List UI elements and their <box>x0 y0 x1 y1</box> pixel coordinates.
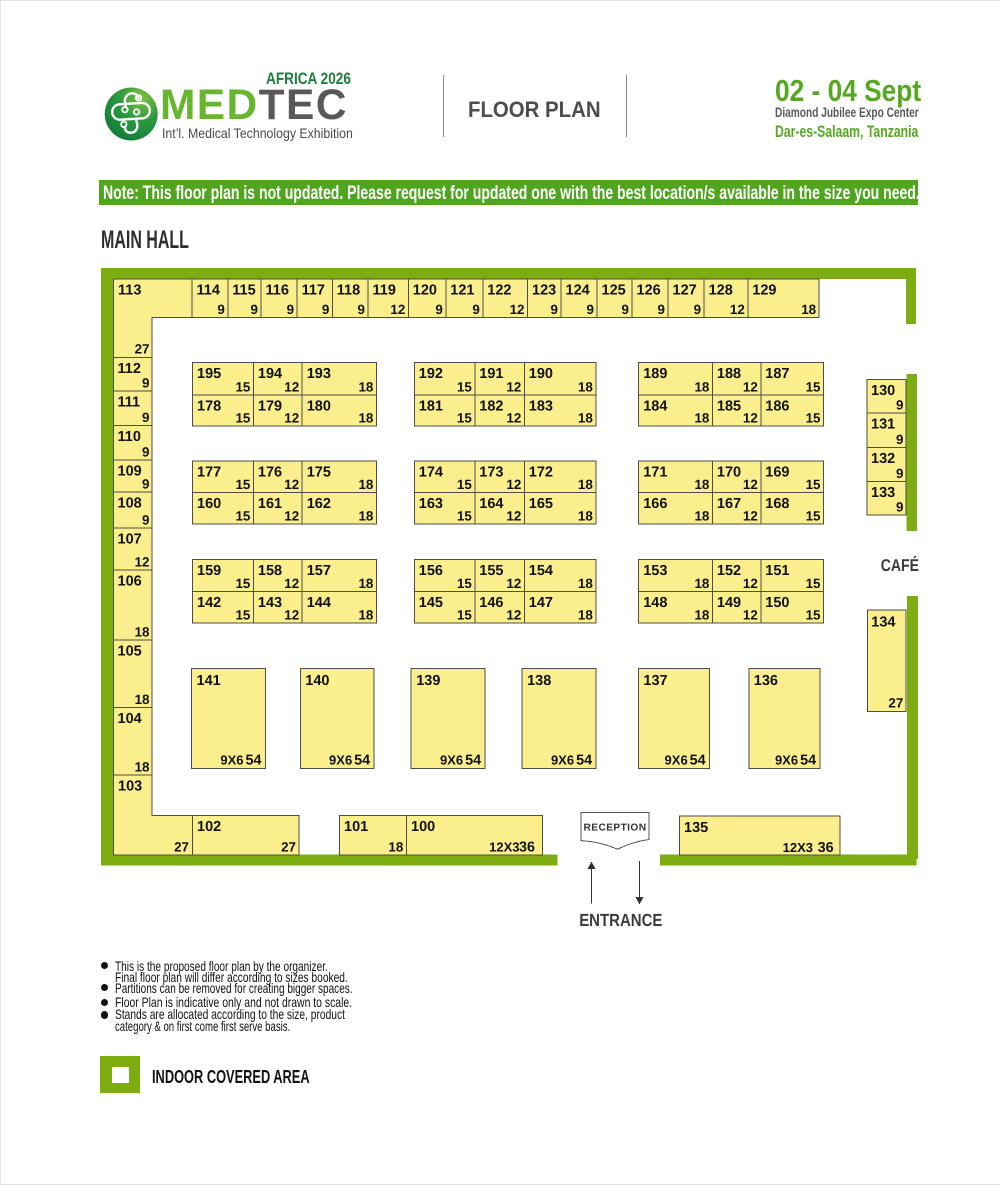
svg-text:54: 54 <box>690 753 706 769</box>
svg-text:18: 18 <box>578 379 593 394</box>
svg-text:147: 147 <box>529 595 553 611</box>
svg-text:106: 106 <box>118 574 142 590</box>
svg-text:136: 136 <box>754 673 778 689</box>
svg-text:102: 102 <box>197 819 221 835</box>
svg-text:174: 174 <box>419 464 443 480</box>
svg-text:54: 54 <box>354 753 370 769</box>
svg-text:170: 170 <box>717 464 741 480</box>
svg-text:9: 9 <box>322 302 329 317</box>
svg-text:15: 15 <box>457 509 472 524</box>
svg-text:123: 123 <box>532 283 556 299</box>
svg-text:163: 163 <box>419 496 443 512</box>
svg-text:9: 9 <box>142 445 149 460</box>
svg-text:27: 27 <box>174 840 189 855</box>
svg-text:112: 112 <box>118 361 141 377</box>
svg-text:103: 103 <box>118 779 142 795</box>
svg-text:167: 167 <box>717 496 741 512</box>
svg-text:12: 12 <box>284 477 299 492</box>
svg-text:9: 9 <box>358 302 365 317</box>
svg-text:179: 179 <box>258 398 282 414</box>
svg-text:12: 12 <box>743 509 758 524</box>
svg-text:127: 127 <box>673 283 697 299</box>
svg-text:195: 195 <box>197 366 221 382</box>
svg-text:36: 36 <box>818 840 834 856</box>
svg-text:183: 183 <box>529 398 553 414</box>
svg-text:15: 15 <box>235 379 250 394</box>
svg-text:187: 187 <box>765 366 789 382</box>
svg-text:9: 9 <box>658 302 665 317</box>
svg-text:184: 184 <box>643 398 667 414</box>
svg-text:12: 12 <box>743 410 758 425</box>
svg-text:133: 133 <box>871 485 895 501</box>
svg-text:178: 178 <box>197 398 221 414</box>
svg-text:171: 171 <box>643 464 667 480</box>
svg-text:18: 18 <box>578 477 593 492</box>
svg-text:118: 118 <box>337 283 360 299</box>
svg-text:164: 164 <box>479 496 503 512</box>
svg-text:15: 15 <box>806 379 821 394</box>
svg-text:12: 12 <box>284 509 299 524</box>
svg-text:177: 177 <box>197 464 221 480</box>
svg-text:9: 9 <box>142 376 149 391</box>
svg-text:142: 142 <box>197 595 221 611</box>
svg-text:15: 15 <box>806 576 821 591</box>
svg-text:124: 124 <box>566 283 590 299</box>
svg-text:100: 100 <box>411 819 435 835</box>
svg-text:189: 189 <box>643 366 667 382</box>
svg-text:9X6: 9X6 <box>551 753 574 768</box>
svg-text:12: 12 <box>506 477 521 492</box>
svg-text:117: 117 <box>302 283 325 299</box>
svg-text:165: 165 <box>529 496 553 512</box>
svg-text:12: 12 <box>284 576 299 591</box>
svg-text:18: 18 <box>578 509 593 524</box>
svg-text:105: 105 <box>118 644 142 660</box>
svg-text:108: 108 <box>118 496 142 512</box>
svg-text:192: 192 <box>419 366 443 382</box>
svg-text:9: 9 <box>896 432 903 447</box>
svg-text:173: 173 <box>479 464 503 480</box>
svg-text:156: 156 <box>419 563 443 579</box>
svg-text:54: 54 <box>245 753 261 769</box>
svg-text:101: 101 <box>344 819 368 835</box>
svg-text:18: 18 <box>694 509 709 524</box>
svg-text:12: 12 <box>506 608 521 623</box>
svg-text:9: 9 <box>142 410 149 425</box>
svg-text:15: 15 <box>457 477 472 492</box>
svg-text:191: 191 <box>479 366 503 382</box>
svg-text:9: 9 <box>287 302 294 317</box>
svg-text:15: 15 <box>235 608 250 623</box>
svg-text:159: 159 <box>197 563 221 579</box>
svg-text:12: 12 <box>135 555 150 570</box>
svg-text:190: 190 <box>529 366 553 382</box>
svg-text:18: 18 <box>578 608 593 623</box>
svg-text:9: 9 <box>694 302 701 317</box>
svg-text:15: 15 <box>806 509 821 524</box>
svg-text:12: 12 <box>506 509 521 524</box>
svg-text:9X6: 9X6 <box>440 753 463 768</box>
svg-text:18: 18 <box>388 839 403 854</box>
svg-text:172: 172 <box>529 464 553 480</box>
svg-text:129: 129 <box>752 283 776 299</box>
svg-text:137: 137 <box>643 673 667 689</box>
svg-text:154: 154 <box>529 563 553 579</box>
svg-text:12: 12 <box>506 379 521 394</box>
svg-text:9X6: 9X6 <box>665 753 688 768</box>
svg-text:193: 193 <box>307 366 331 382</box>
svg-text:185: 185 <box>717 398 741 414</box>
svg-text:186: 186 <box>765 398 789 414</box>
svg-text:18: 18 <box>694 576 709 591</box>
svg-text:155: 155 <box>479 563 503 579</box>
svg-text:27: 27 <box>281 839 296 854</box>
svg-text:109: 109 <box>118 464 142 480</box>
svg-text:27: 27 <box>135 342 150 357</box>
svg-text:18: 18 <box>578 576 593 591</box>
svg-text:9: 9 <box>896 500 903 515</box>
svg-text:162: 162 <box>307 496 331 512</box>
svg-text:145: 145 <box>419 595 443 611</box>
svg-text:9: 9 <box>472 302 479 317</box>
svg-text:151: 151 <box>765 563 789 579</box>
svg-text:9X6: 9X6 <box>775 753 798 768</box>
svg-text:RECEPTION: RECEPTION <box>584 823 647 834</box>
svg-text:15: 15 <box>457 410 472 425</box>
svg-text:166: 166 <box>643 496 667 512</box>
svg-text:54: 54 <box>800 753 816 769</box>
svg-text:12: 12 <box>743 608 758 623</box>
svg-text:12: 12 <box>506 576 521 591</box>
svg-text:181: 181 <box>419 398 443 414</box>
svg-text:107: 107 <box>118 531 142 547</box>
svg-text:18: 18 <box>135 625 150 640</box>
svg-text:125: 125 <box>602 283 626 299</box>
svg-text:134: 134 <box>871 614 895 630</box>
svg-text:12: 12 <box>730 302 745 317</box>
svg-text:18: 18 <box>694 379 709 394</box>
svg-text:18: 18 <box>358 576 373 591</box>
svg-text:15: 15 <box>235 576 250 591</box>
svg-text:9: 9 <box>587 302 594 317</box>
svg-text:113: 113 <box>118 283 141 299</box>
svg-text:152: 152 <box>717 563 741 579</box>
svg-text:114: 114 <box>197 283 220 299</box>
svg-text:18: 18 <box>358 410 373 425</box>
svg-text:18: 18 <box>578 410 593 425</box>
svg-text:12: 12 <box>506 410 521 425</box>
svg-text:9X6: 9X6 <box>329 753 352 768</box>
svg-text:18: 18 <box>135 692 150 707</box>
svg-text:116: 116 <box>266 283 289 299</box>
svg-text:9: 9 <box>896 466 903 481</box>
svg-text:175: 175 <box>307 464 331 480</box>
svg-text:36: 36 <box>519 839 535 855</box>
svg-text:132: 132 <box>871 451 895 467</box>
svg-text:ENTRANCE: ENTRANCE <box>579 910 662 930</box>
svg-text:15: 15 <box>457 379 472 394</box>
svg-text:128: 128 <box>709 283 733 299</box>
svg-text:161: 161 <box>258 496 282 512</box>
svg-text:9: 9 <box>896 398 903 413</box>
svg-text:9X6: 9X6 <box>220 753 243 768</box>
svg-text:141: 141 <box>197 673 221 689</box>
svg-text:15: 15 <box>806 608 821 623</box>
svg-text:9: 9 <box>142 512 149 527</box>
svg-text:130: 130 <box>871 383 895 399</box>
svg-text:12X3: 12X3 <box>783 840 813 855</box>
svg-text:149: 149 <box>717 595 741 611</box>
svg-text:169: 169 <box>765 464 789 480</box>
svg-text:110: 110 <box>118 429 141 445</box>
svg-text:9: 9 <box>251 302 258 317</box>
svg-text:104: 104 <box>118 711 142 727</box>
svg-text:126: 126 <box>637 283 661 299</box>
svg-text:9: 9 <box>551 302 558 317</box>
svg-text:119: 119 <box>373 283 396 299</box>
svg-text:148: 148 <box>643 595 667 611</box>
svg-text:18: 18 <box>358 509 373 524</box>
svg-text:180: 180 <box>307 398 331 414</box>
svg-text:188: 188 <box>717 366 741 382</box>
svg-text:12X3: 12X3 <box>489 839 519 854</box>
svg-text:12: 12 <box>390 302 405 317</box>
svg-text:9: 9 <box>142 477 149 492</box>
svg-text:12: 12 <box>284 379 299 394</box>
svg-text:122: 122 <box>487 283 511 299</box>
svg-text:140: 140 <box>305 673 329 689</box>
svg-text:121: 121 <box>450 283 474 299</box>
svg-text:18: 18 <box>801 302 816 317</box>
svg-text:12: 12 <box>743 379 758 394</box>
svg-text:150: 150 <box>765 595 789 611</box>
svg-text:18: 18 <box>135 759 150 774</box>
svg-text:194: 194 <box>258 366 282 382</box>
svg-text:111: 111 <box>118 395 141 411</box>
svg-text:120: 120 <box>413 283 437 299</box>
svg-text:139: 139 <box>416 673 440 689</box>
svg-text:9: 9 <box>217 302 224 317</box>
svg-text:146: 146 <box>479 595 503 611</box>
svg-text:160: 160 <box>197 496 221 512</box>
svg-text:12: 12 <box>743 576 758 591</box>
svg-text:18: 18 <box>358 608 373 623</box>
svg-text:15: 15 <box>235 509 250 524</box>
svg-text:12: 12 <box>510 302 525 317</box>
svg-text:15: 15 <box>457 608 472 623</box>
svg-text:27: 27 <box>888 696 903 711</box>
svg-text:18: 18 <box>358 477 373 492</box>
svg-text:176: 176 <box>258 464 282 480</box>
svg-text:143: 143 <box>258 595 282 611</box>
svg-text:12: 12 <box>743 477 758 492</box>
svg-text:138: 138 <box>527 673 551 689</box>
svg-text:9: 9 <box>622 302 629 317</box>
svg-text:54: 54 <box>465 753 481 769</box>
svg-text:18: 18 <box>694 410 709 425</box>
svg-text:18: 18 <box>694 477 709 492</box>
svg-text:54: 54 <box>576 753 592 769</box>
svg-text:18: 18 <box>694 608 709 623</box>
svg-text:9: 9 <box>435 302 442 317</box>
svg-text:115: 115 <box>232 283 255 299</box>
svg-text:15: 15 <box>806 410 821 425</box>
svg-text:158: 158 <box>258 563 282 579</box>
svg-text:15: 15 <box>235 410 250 425</box>
svg-text:15: 15 <box>806 477 821 492</box>
svg-text:168: 168 <box>765 496 789 512</box>
svg-text:CAFÉ: CAFÉ <box>881 555 919 575</box>
svg-text:15: 15 <box>457 576 472 591</box>
svg-text:131: 131 <box>871 417 895 433</box>
svg-text:157: 157 <box>307 563 331 579</box>
svg-text:135: 135 <box>684 820 708 836</box>
svg-text:182: 182 <box>479 398 503 414</box>
svg-text:12: 12 <box>284 608 299 623</box>
svg-text:15: 15 <box>235 477 250 492</box>
svg-text:18: 18 <box>358 379 373 394</box>
svg-text:153: 153 <box>643 563 667 579</box>
svg-text:144: 144 <box>307 595 331 611</box>
svg-text:12: 12 <box>284 410 299 425</box>
